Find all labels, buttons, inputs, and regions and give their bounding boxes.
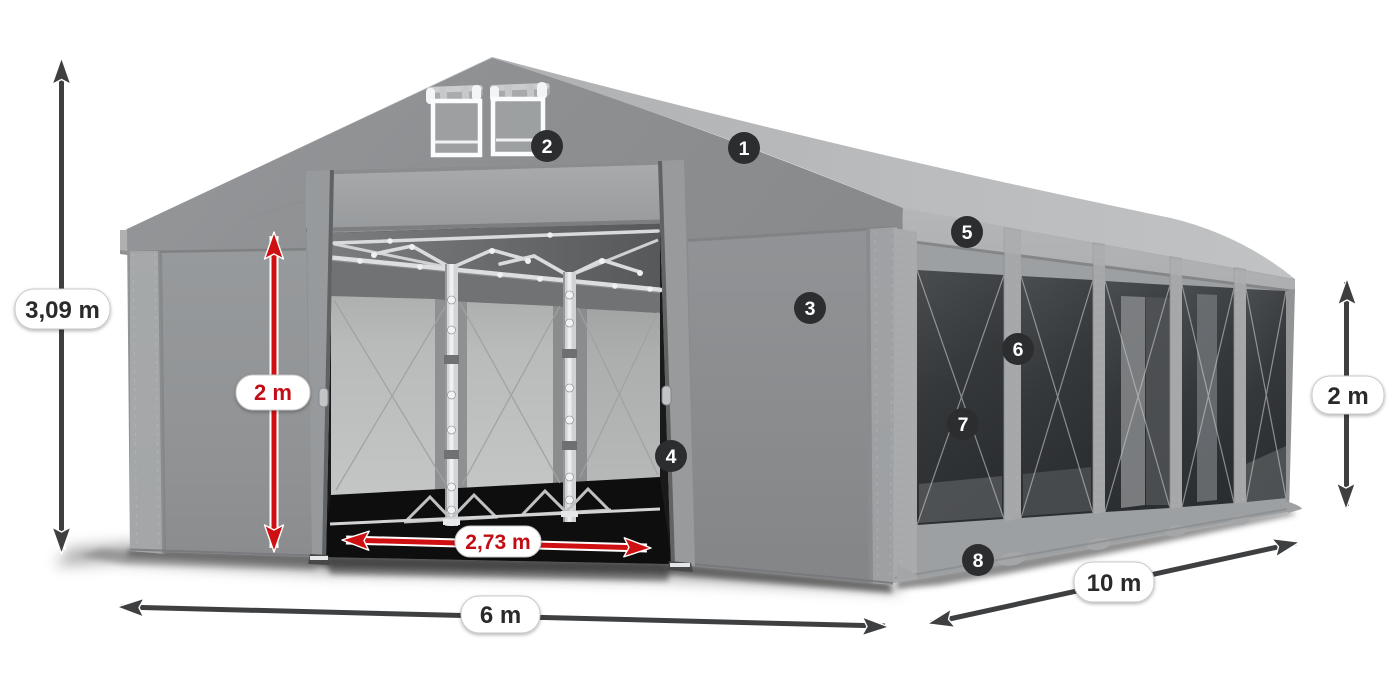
svg-text:2,73 m: 2,73 m	[465, 531, 530, 554]
svg-text:4: 4	[666, 446, 677, 468]
svg-text:8: 8	[973, 550, 984, 572]
svg-text:3,09 m: 3,09 m	[25, 297, 100, 324]
svg-text:2 m: 2 m	[254, 380, 292, 405]
svg-text:5: 5	[962, 222, 973, 244]
svg-text:6: 6	[1013, 339, 1024, 361]
svg-text:7: 7	[958, 414, 969, 436]
svg-text:10 m: 10 m	[1087, 570, 1142, 597]
svg-text:2 m: 2 m	[1327, 383, 1368, 410]
svg-text:6 m: 6 m	[480, 602, 521, 629]
svg-text:2: 2	[542, 136, 553, 158]
svg-text:1: 1	[739, 138, 750, 160]
svg-text:3: 3	[805, 298, 816, 320]
